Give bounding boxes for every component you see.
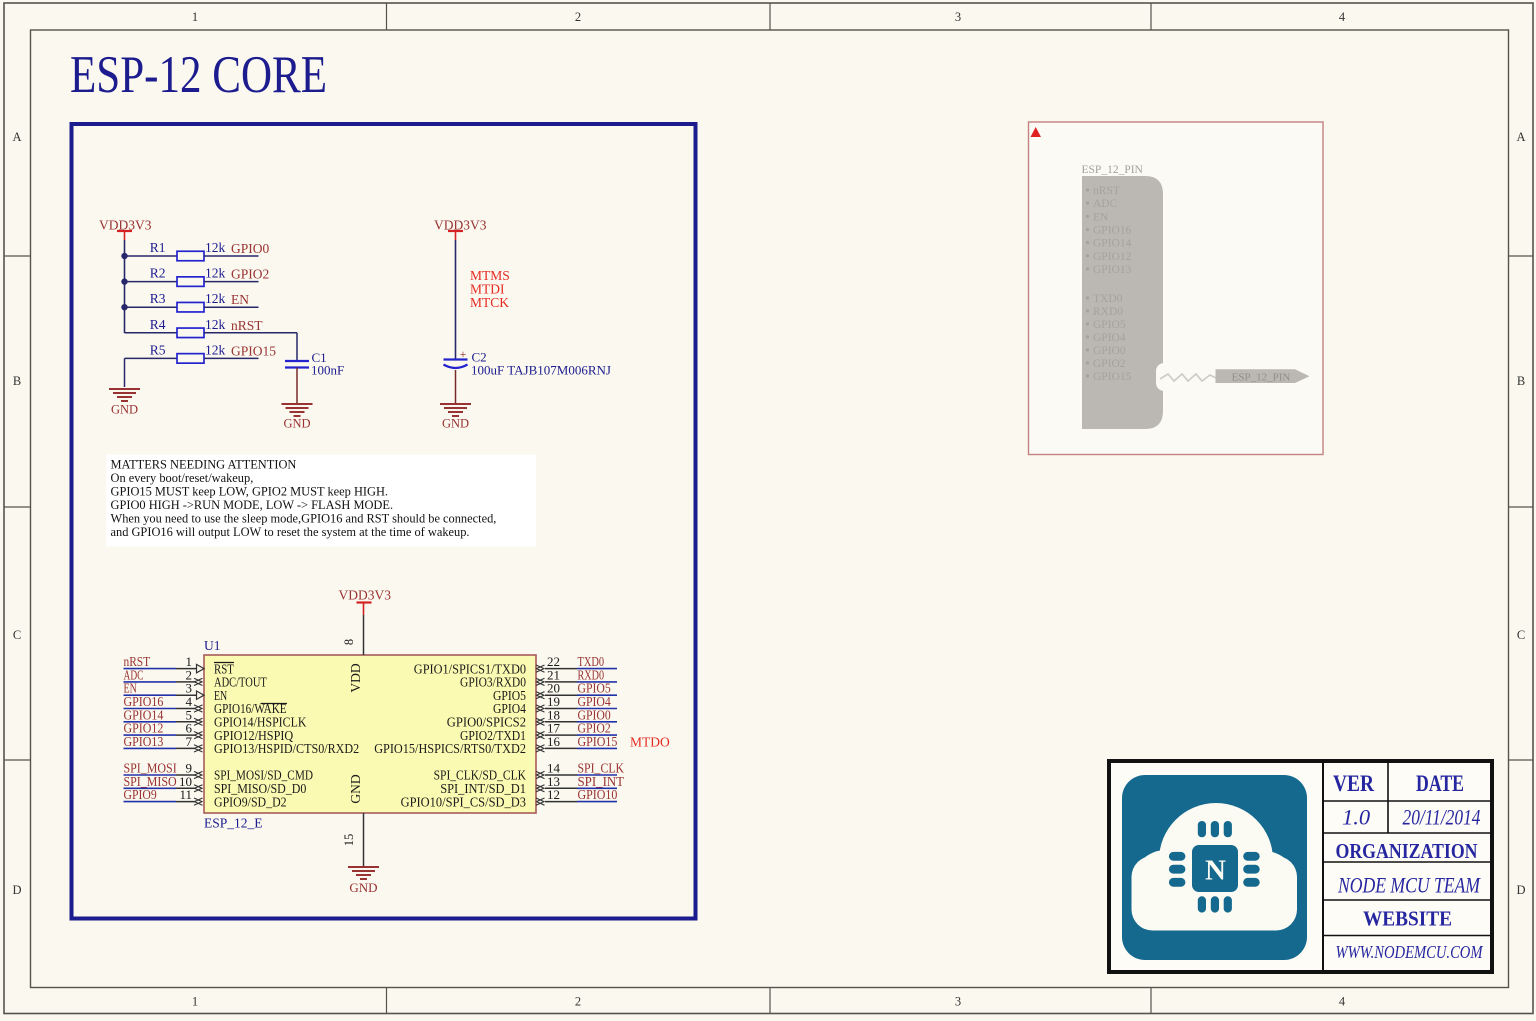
svg-text:20/11/2014: 20/11/2014 [1403,805,1481,830]
svg-text:12k: 12k [205,291,226,306]
svg-text:ESP-12 CORE: ESP-12 CORE [70,46,327,104]
svg-text:GPIO9: GPIO9 [124,787,157,802]
svg-text:1: 1 [192,10,198,24]
svg-text:D: D [1516,883,1525,897]
svg-text:7: 7 [186,734,193,749]
svg-text:VDD3V3: VDD3V3 [339,588,392,603]
svg-text:TXD0: TXD0 [1093,293,1123,305]
svg-text:4: 4 [1339,10,1346,24]
svg-text:B: B [13,374,21,388]
svg-text:ESP_12_PIN: ESP_12_PIN [1232,372,1291,384]
svg-text:DATE: DATE [1416,771,1464,796]
svg-text:8: 8 [342,639,356,645]
svg-text:12k: 12k [205,240,226,255]
svg-text:R3: R3 [150,291,166,306]
svg-text:C: C [1517,628,1525,642]
svg-text:GPIO14: GPIO14 [1093,238,1132,250]
svg-text:NODE MCU TEAM: NODE MCU TEAM [1337,873,1481,898]
svg-text:GPIO0: GPIO0 [1093,345,1126,357]
svg-text:MTCK: MTCK [470,295,509,310]
svg-text:nRST: nRST [1093,185,1120,197]
svg-text:GND: GND [283,417,310,431]
svg-text:U1: U1 [204,638,221,653]
svg-text:GPIO5: GPIO5 [1093,319,1126,331]
svg-text:GPIO4: GPIO4 [1093,332,1126,344]
svg-text:C: C [13,628,21,642]
svg-text:+: + [460,349,467,361]
svg-text:12k: 12k [205,342,226,357]
svg-text:GPIO15: GPIO15 [578,734,618,749]
svg-text:GND: GND [348,774,363,803]
svg-text:GPIO2: GPIO2 [1093,358,1126,370]
svg-text:and GPIO16 will output LOW to: and GPIO16 will output LOW to reset the … [111,525,470,539]
svg-text:D: D [12,883,21,897]
svg-text:N: N [1205,855,1226,887]
svg-text:GND: GND [111,403,138,417]
svg-text:ADC: ADC [1093,198,1118,210]
svg-text:WWW.NODEMCU.COM: WWW.NODEMCU.COM [1336,942,1484,962]
svg-text:GPIO15: GPIO15 [1093,371,1132,383]
svg-text:R2: R2 [150,266,166,281]
svg-text:GPIO15: GPIO15 [231,343,276,358]
svg-text:4: 4 [1339,995,1346,1009]
svg-text:VDD: VDD [348,663,363,692]
svg-text:On every boot/reset/wakeup,: On every boot/reset/wakeup, [111,471,254,485]
svg-text:GPIO15 MUST keep LOW, GPIO2 MU: GPIO15 MUST keep LOW, GPIO2 MUST keep HI… [111,485,389,499]
svg-text:EN: EN [231,292,249,307]
svg-text:2: 2 [575,995,581,1009]
svg-text:2: 2 [575,10,581,24]
svg-text:WEBSITE: WEBSITE [1363,907,1452,931]
svg-text:R4: R4 [150,317,166,332]
svg-text:3: 3 [955,10,961,24]
svg-text:MATTERS NEEDING ATTENTION: MATTERS NEEDING ATTENTION [111,458,297,472]
svg-text:100uF TAJB107M006RNJ: 100uF TAJB107M006RNJ [471,363,611,378]
svg-text:R1: R1 [150,240,166,255]
svg-text:When you need to use the sleep: When you need to use the sleep mode,GPIO… [111,512,497,526]
svg-text:R5: R5 [150,342,166,357]
svg-text:GPIO13: GPIO13 [124,734,164,749]
svg-text:nRST: nRST [231,318,263,333]
svg-text:GPIO9/SD_D2: GPIO9/SD_D2 [214,794,287,809]
svg-text:GPIO10/SPI_CS/SD_D3: GPIO10/SPI_CS/SD_D3 [401,794,527,809]
svg-text:100nF: 100nF [311,363,344,378]
svg-text:12k: 12k [205,317,226,332]
svg-text:GPIO0: GPIO0 [231,241,270,256]
svg-text:GPIO15/HSPICS/RTS0/TXD2: GPIO15/HSPICS/RTS0/TXD2 [374,741,526,756]
svg-text:12k: 12k [205,266,226,281]
svg-text:ORGANIZATION: ORGANIZATION [1336,839,1478,863]
svg-text:B: B [1517,374,1525,388]
svg-text:3: 3 [955,995,961,1009]
svg-text:1: 1 [192,995,198,1009]
svg-text:GPIO10: GPIO10 [578,787,618,802]
svg-text:GPIO12: GPIO12 [1093,251,1132,263]
svg-text:A: A [12,130,21,144]
svg-text:GPIO16: GPIO16 [1093,224,1132,236]
svg-text:GND: GND [442,417,469,431]
svg-text:16: 16 [547,734,561,749]
svg-text:1.0: 1.0 [1342,805,1370,830]
svg-text:MTDO: MTDO [630,735,670,750]
svg-text:RXD0: RXD0 [1093,306,1123,318]
svg-text:ESP_12_E: ESP_12_E [204,816,263,831]
svg-text:A: A [1516,130,1525,144]
svg-text:15: 15 [342,834,356,847]
svg-text:GPIO2: GPIO2 [231,267,269,282]
svg-text:ESP_12_PIN: ESP_12_PIN [1082,164,1144,176]
svg-text:GND: GND [349,880,377,895]
svg-text:12: 12 [547,787,560,802]
svg-text:EN: EN [1093,211,1109,223]
svg-text:GPIO13/HSPID/CTS0/RXD2: GPIO13/HSPID/CTS0/RXD2 [214,741,359,756]
svg-text:GPIO0 HIGH ->RUN MODE, LOW ->: GPIO0 HIGH ->RUN MODE, LOW -> FLASH MODE… [111,498,394,512]
svg-text:VER: VER [1333,771,1374,796]
svg-text:11: 11 [179,787,192,802]
svg-text:GPIO13: GPIO13 [1093,264,1132,276]
